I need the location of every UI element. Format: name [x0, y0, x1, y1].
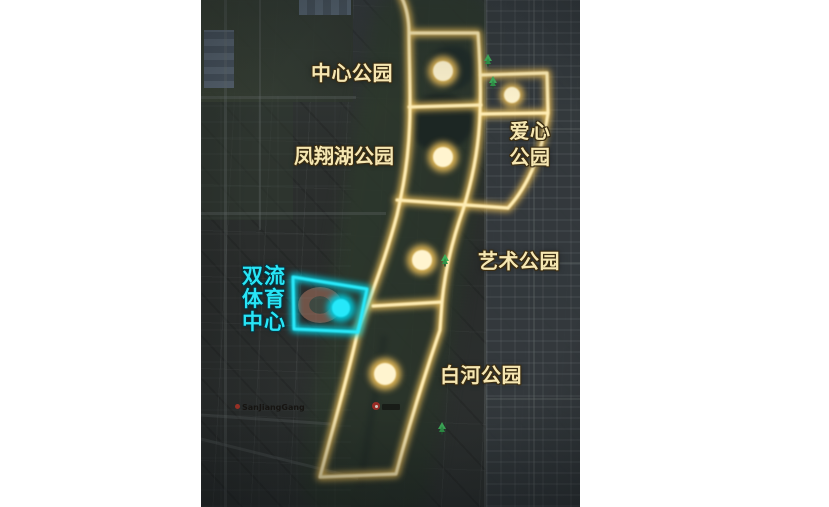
park-marker-baihe [374, 363, 396, 385]
park-marker-zhongxin [433, 61, 453, 81]
satellite-map: SanJiangGang [201, 0, 580, 507]
park-marker-aixin [504, 87, 520, 103]
sports-center-marker [332, 299, 350, 317]
label-zhongxin-park: 中心公园 [307, 60, 397, 86]
park-marker-fengxianghu [433, 147, 453, 167]
label-baihe-park: 白河公园 [437, 362, 525, 388]
label-yishu-park: 艺术公园 [476, 248, 562, 274]
label-sports-center: 双流 体育 中心 [238, 265, 290, 334]
label-aixin-park: 爱心 公园 [502, 118, 558, 170]
label-fengxianghu-park: 凤翔湖公园 [290, 143, 398, 169]
figure-canvas: SanJiangGang [0, 0, 829, 507]
park-marker-yishu [412, 250, 432, 270]
sports-center-boundary-glow [293, 277, 367, 332]
